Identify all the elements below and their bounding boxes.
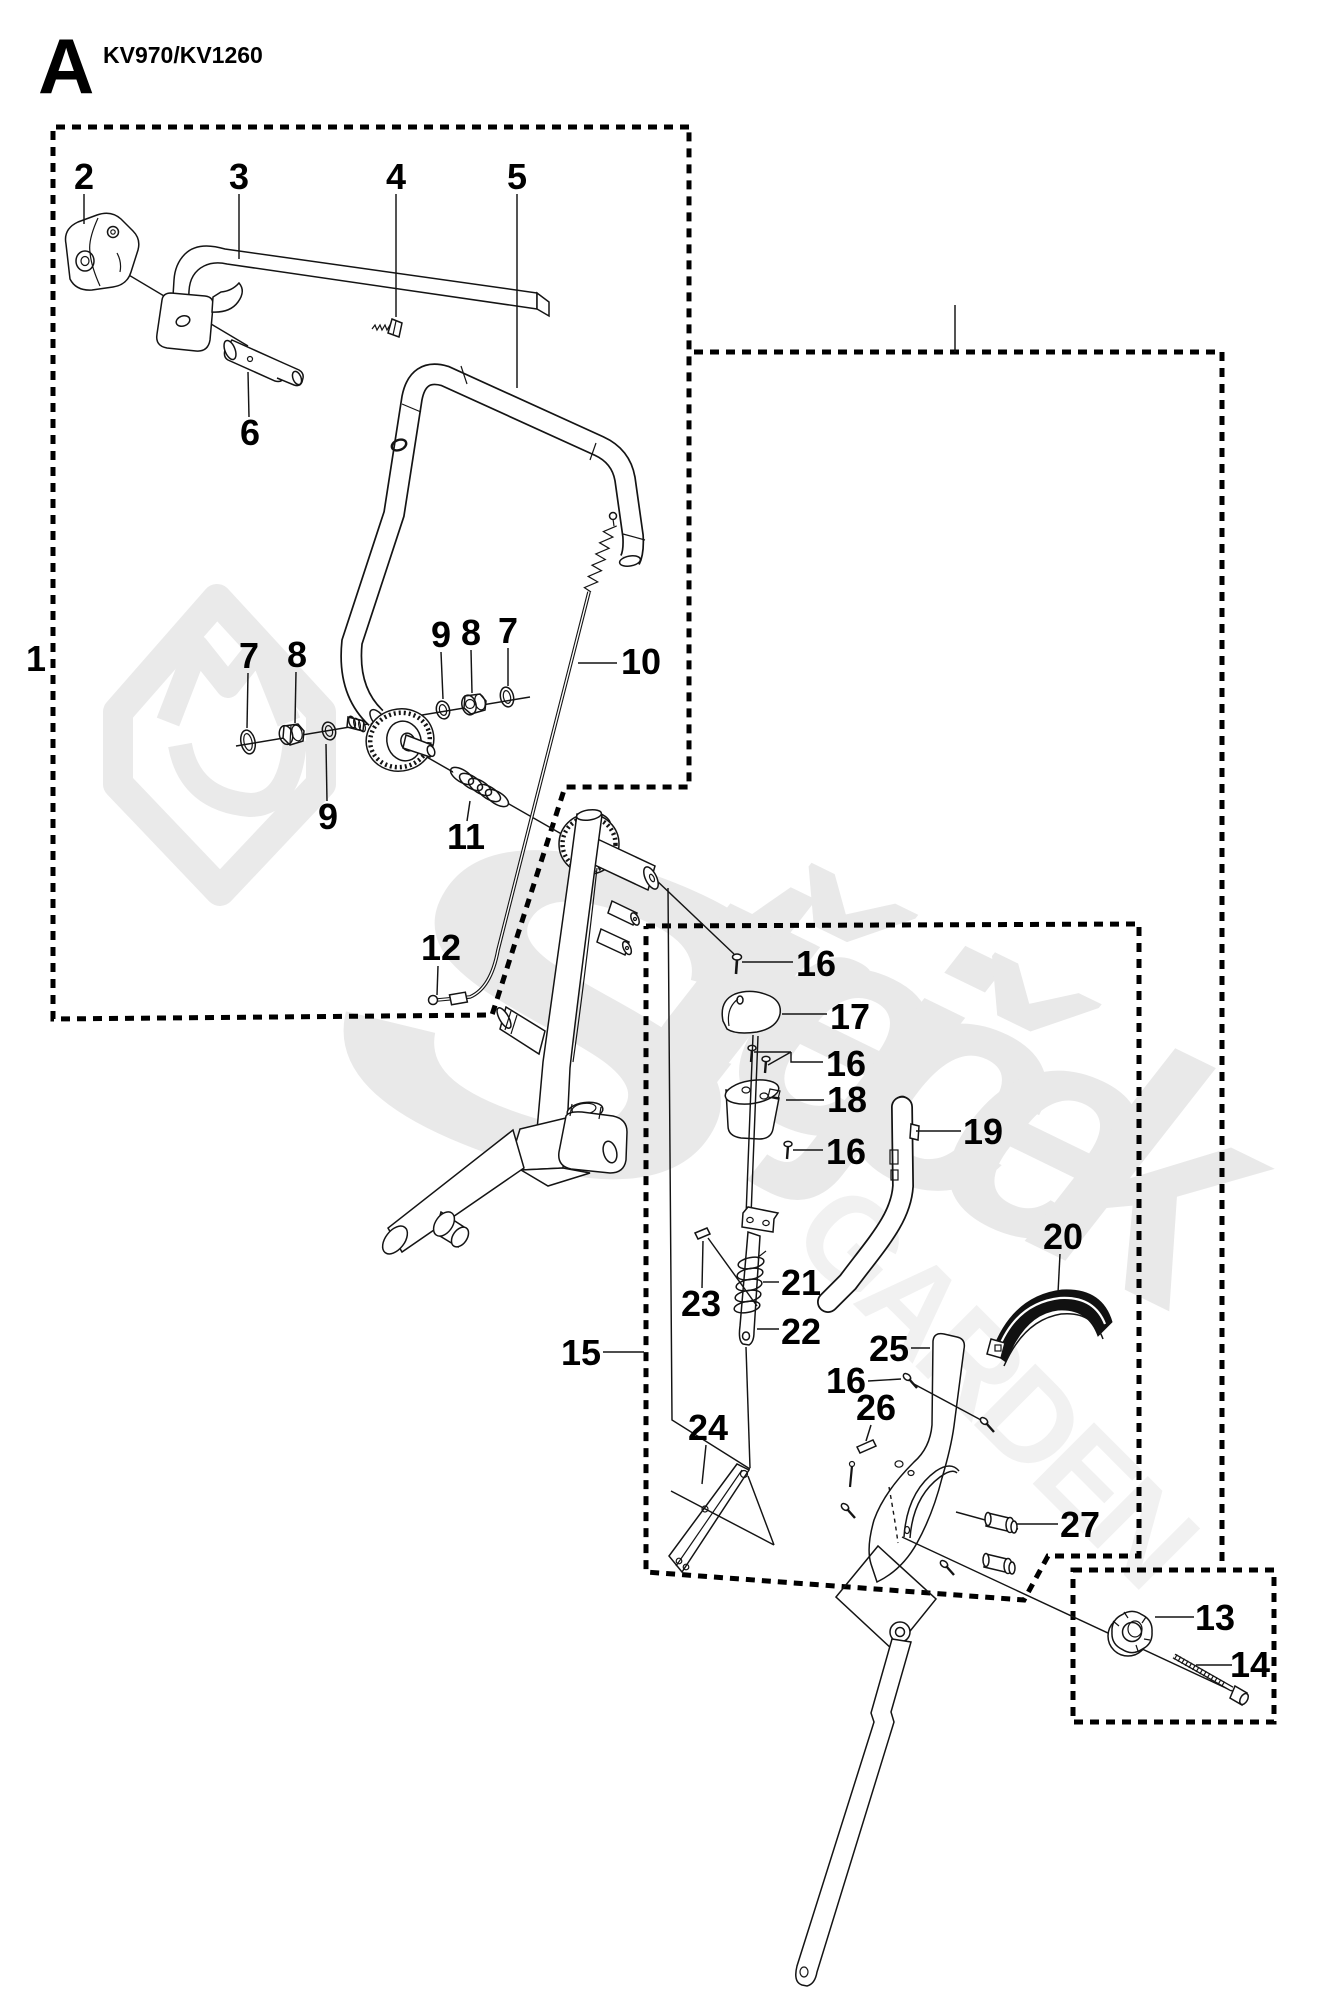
- svg-text:8: 8: [287, 634, 307, 675]
- svg-text:1: 1: [26, 638, 46, 679]
- svg-text:3: 3: [229, 156, 249, 197]
- svg-text:27: 27: [1060, 1504, 1100, 1545]
- svg-text:16: 16: [826, 1043, 866, 1084]
- svg-text:9: 9: [318, 796, 338, 837]
- svg-text:22: 22: [781, 1311, 821, 1352]
- svg-text:4: 4: [386, 156, 406, 197]
- svg-text:14: 14: [1230, 1644, 1270, 1685]
- svg-text:2: 2: [74, 156, 94, 197]
- svg-text:13: 13: [1195, 1597, 1235, 1638]
- svg-text:17: 17: [830, 996, 870, 1037]
- svg-text:18: 18: [827, 1079, 867, 1120]
- svg-text:21: 21: [781, 1262, 821, 1303]
- svg-text:23: 23: [681, 1283, 721, 1324]
- svg-text:16: 16: [796, 943, 836, 984]
- svg-text:A: A: [38, 22, 94, 110]
- svg-text:15: 15: [561, 1332, 601, 1373]
- svg-text:KV970/KV1260: KV970/KV1260: [103, 42, 263, 68]
- svg-text:20: 20: [1043, 1216, 1083, 1257]
- svg-text:5: 5: [507, 156, 527, 197]
- svg-text:12: 12: [421, 927, 461, 968]
- svg-text:19: 19: [963, 1111, 1003, 1152]
- svg-text:10: 10: [621, 641, 661, 682]
- svg-text:8: 8: [461, 612, 481, 653]
- svg-text:26: 26: [856, 1387, 896, 1428]
- svg-text:9: 9: [431, 614, 451, 655]
- svg-text:24: 24: [688, 1407, 728, 1448]
- svg-text:25: 25: [869, 1328, 909, 1369]
- svg-text:7: 7: [498, 610, 518, 651]
- svg-text:16: 16: [826, 1131, 866, 1172]
- svg-text:11: 11: [447, 816, 485, 857]
- svg-text:6: 6: [240, 412, 260, 453]
- svg-text:7: 7: [239, 635, 259, 676]
